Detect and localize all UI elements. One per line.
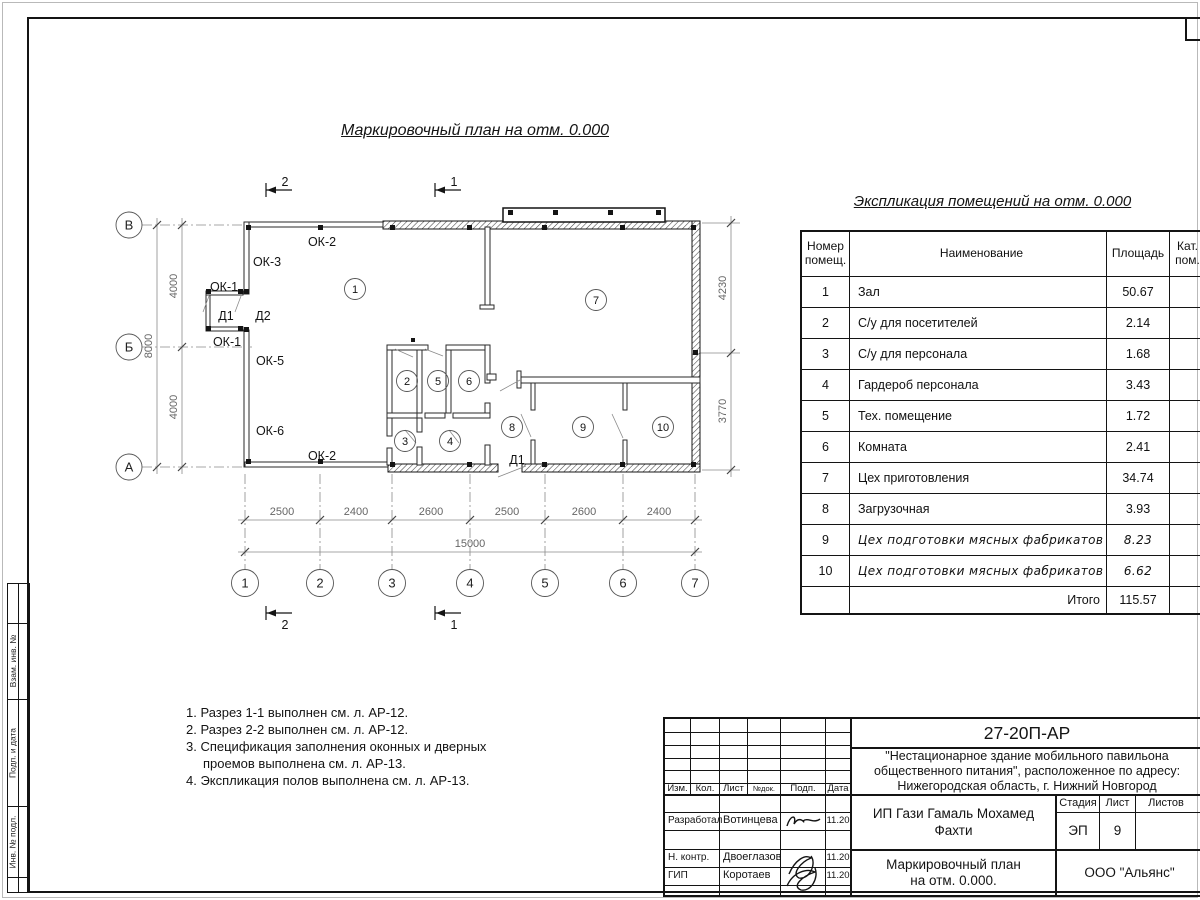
room-number: 6 [466,376,472,388]
table-row: 8Загрузочная3.93 [801,494,1200,525]
room-num: 1 [801,277,850,308]
room-cat [1170,432,1200,463]
room-cat [1170,463,1200,494]
door-label: Д1 [509,453,524,467]
porch [503,208,665,222]
axis-label: 7 [691,576,698,591]
tb-drawing-title: Маркировочный план на отм. 0.000. [852,851,1055,895]
room-area: 3.43 [1107,370,1170,401]
axis-label: Б [125,340,134,355]
axis-bubbles: В Б А 1 2 3 4 5 6 7 [116,212,709,597]
room-bubbles: 1 2 3 4 5 6 7 8 9 10 [345,279,674,452]
tb-doc-code: 27-20П-АР [852,719,1200,747]
window-label: ОК-3 [253,255,281,269]
table-total-row: Итого 115.57 [801,587,1200,615]
total-label: Итого [850,587,1107,615]
empty-cell [801,587,850,615]
room-cat [1170,494,1200,525]
room-area: 8.23 [1107,525,1170,556]
room-number: 9 [580,422,586,434]
col-header-cat: Кат. пом. [1170,231,1200,277]
axis-label: В [125,218,134,233]
title-block: Изм. Кол. Лист №док. Подп. Дата Разработ… [663,717,1200,897]
table-row: 6Комната2.41 [801,432,1200,463]
room-number: 5 [435,376,441,388]
table-header-row: Номер помещ. Наименование Площадь Кат. п… [801,231,1200,277]
window-label: ОК-6 [256,424,284,438]
room-area: 6.62 [1107,556,1170,587]
window-label: ОК-5 [256,354,284,368]
section-marker-1-bottom: 1 [435,606,461,632]
room-cat [1170,401,1200,432]
room-name: Цех приготовления [850,463,1107,494]
tb-date: 11.20 [826,812,850,830]
signatures [781,812,826,895]
room-num: 8 [801,494,850,525]
tb-description: "Нестационарное здание мобильного павиль… [855,749,1199,794]
dim-label: 4000 [168,395,180,419]
room-area: 34.74 [1107,463,1170,494]
note-line: 1. Разрез 1-1 выполнен см. л. АР-12. [186,705,508,722]
tb-sheet-label: Лист [1100,796,1135,812]
tb-client: ИП Гази Гамаль Мохамед Фахти [852,796,1055,849]
room-area: 2.14 [1107,308,1170,339]
room-name: Тех. помещение [850,401,1107,432]
room-num: 4 [801,370,850,401]
dim-label: 2500 [270,506,294,518]
door-label: Д2 [255,309,270,323]
table-row: 10Цех подготовки мясных фабрикатов6.62 [801,556,1200,587]
col-header-name: Наименование [850,231,1107,277]
col-header-area: Площадь [1107,231,1170,277]
table-row: 3С/у для персонала1.68 [801,339,1200,370]
axis-label: 6 [619,576,626,591]
tb-line [665,794,850,796]
room-num: 2 [801,308,850,339]
dim-label: 4000 [168,274,180,298]
tb-sheet-value: 9 [1100,813,1135,849]
axis-label: 4 [466,576,473,591]
tb-role: ГИП [665,867,722,885]
tb-sheets-value [1136,813,1196,849]
window-label: ОК-1 [213,335,241,349]
room-cat [1170,370,1200,401]
room-number: 8 [509,422,515,434]
room-area: 2.41 [1107,432,1170,463]
tb-role: Разработал [665,812,722,830]
room-name: Цех подготовки мясных фабрикатов [850,525,1107,556]
axis-label: 5 [541,576,548,591]
section-marker-2-top: 2 [266,175,292,197]
col-header-number: Номер помещ. [801,231,850,277]
table-row: 1Зал50.67 [801,277,1200,308]
room-name: Цех подготовки мясных фабрикатов [850,556,1107,587]
empty-cell [1170,587,1200,615]
tb-name: Вотинцева [720,812,783,830]
tb-line [665,732,850,733]
tb-line [665,758,850,759]
tb-col-list: Лист [720,783,747,794]
dim-label: 2600 [572,506,596,518]
window-label: ОК-2 [308,235,336,249]
dim-label: 3770 [717,399,729,423]
table-row: 4Гардероб персонала3.43 [801,370,1200,401]
opening-labels: ОК-2 ОК-3 ОК-1 Д1 Д2 ОК-1 ОК-5 ОК-6 ОК-2… [210,235,525,467]
room-name: С/у для персонала [850,339,1107,370]
room-cat [1170,277,1200,308]
tb-stage-value: ЭП [1057,813,1099,849]
signature-dvoeglazov-korotaev [787,856,816,890]
total-area: 115.57 [1107,587,1170,615]
dim-total-label: 15000 [455,538,486,550]
room-number: 1 [352,284,358,296]
room-number: 10 [657,422,669,434]
room-cat [1170,339,1200,370]
room-num: 6 [801,432,850,463]
room-cat [1170,525,1200,556]
room-num: 9 [801,525,850,556]
room-num: 10 [801,556,850,587]
tb-stage-label: Стадия [1057,796,1099,812]
section-number: 1 [451,175,458,189]
tb-name: Двоеглазов [720,849,783,867]
axis-label: 2 [316,576,323,591]
window-label: ОК-1 [210,280,238,294]
notes-block: 1. Разрез 1-1 выполнен см. л. АР-12. 2. … [186,705,508,789]
table-row: 2С/у для посетителей2.14 [801,308,1200,339]
tb-col-podp: Подп. [781,783,825,794]
tb-col-kol: Кол. [691,783,719,794]
room-num: 5 [801,401,850,432]
room-cat [1170,308,1200,339]
room-area: 1.72 [1107,401,1170,432]
section-number: 1 [451,618,458,632]
tb-line [665,770,850,771]
table-row: 9Цех подготовки мясных фабрикатов8.23 [801,525,1200,556]
room-num: 7 [801,463,850,494]
note-line: 3. Спецификация заполнения оконных и две… [186,739,508,773]
room-number: 4 [447,436,453,448]
door-label: Д1 [218,309,233,323]
dim-label: 4230 [717,276,729,300]
room-number: 2 [404,376,410,388]
axis-label: 3 [388,576,395,591]
tb-company: ООО "Альянс" [1057,851,1200,895]
drawing-sheet: Взам. инв. № Подп. и дата Инв. № подл. М… [0,0,1200,900]
note-line: 4. Экспликация полов выполнена см. л. АР… [186,773,508,790]
tb-date: 11.20 [826,867,850,885]
dim-label: 2400 [344,506,368,518]
section-marker-1-top: 1 [435,175,461,197]
room-area: 50.67 [1107,277,1170,308]
tb-col-ndok: №док. [748,783,780,794]
tb-sheets-label: Листов [1136,796,1196,812]
room-name: С/у для посетителей [850,308,1107,339]
section-marker-2-bottom: 2 [266,606,292,632]
dim-label: 2400 [647,506,671,518]
tb-name: Коротаев [720,867,783,885]
room-area: 3.93 [1107,494,1170,525]
axis-label: 1 [241,576,248,591]
dim-label: 2500 [495,506,519,518]
leader-lines [203,296,623,477]
dimension-lines [153,216,735,556]
note-line: 2. Разрез 2-2 выполнен см. л. АР-12. [186,722,508,739]
section-markers: 2 1 2 1 [266,175,461,632]
tb-date: 11.20 [826,849,850,867]
room-number: 3 [402,436,408,448]
table-row: 7Цех приготовления34.74 [801,463,1200,494]
dim-total-label: 8000 [143,334,155,358]
room-num: 3 [801,339,850,370]
tb-col-data: Дата [826,783,850,794]
window-label: ОК-2 [308,449,336,463]
room-explication-table: Номер помещ. Наименование Площадь Кат. п… [800,230,1200,615]
tb-line [665,745,850,746]
room-number: 7 [593,295,599,307]
section-number: 2 [282,175,289,189]
room-area: 1.68 [1107,339,1170,370]
signature-votintseva [787,817,820,826]
axis-label: А [125,460,134,475]
room-name: Загрузочная [850,494,1107,525]
tb-col-izm: Изм. [665,783,690,794]
section-number: 2 [282,618,289,632]
room-name: Зал [850,277,1107,308]
dim-label: 2600 [419,506,443,518]
room-cat [1170,556,1200,587]
room-name: Гардероб персонала [850,370,1107,401]
tb-role: Н. контр. [665,849,722,867]
table-row: 5Тех. помещение1.72 [801,401,1200,432]
room-name: Комната [850,432,1107,463]
